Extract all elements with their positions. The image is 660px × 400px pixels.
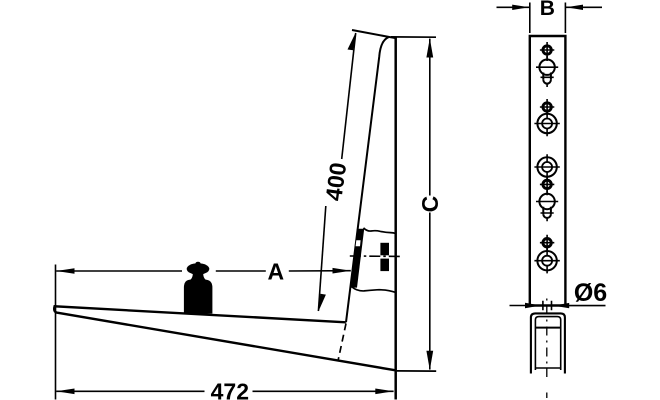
- svg-text:C: C: [417, 196, 443, 213]
- svg-text:472: 472: [211, 379, 249, 400]
- svg-text:Ø6: Ø6: [574, 279, 607, 307]
- svg-text:B: B: [540, 0, 555, 20]
- svg-text:400: 400: [320, 161, 351, 203]
- svg-text:A: A: [267, 258, 284, 284]
